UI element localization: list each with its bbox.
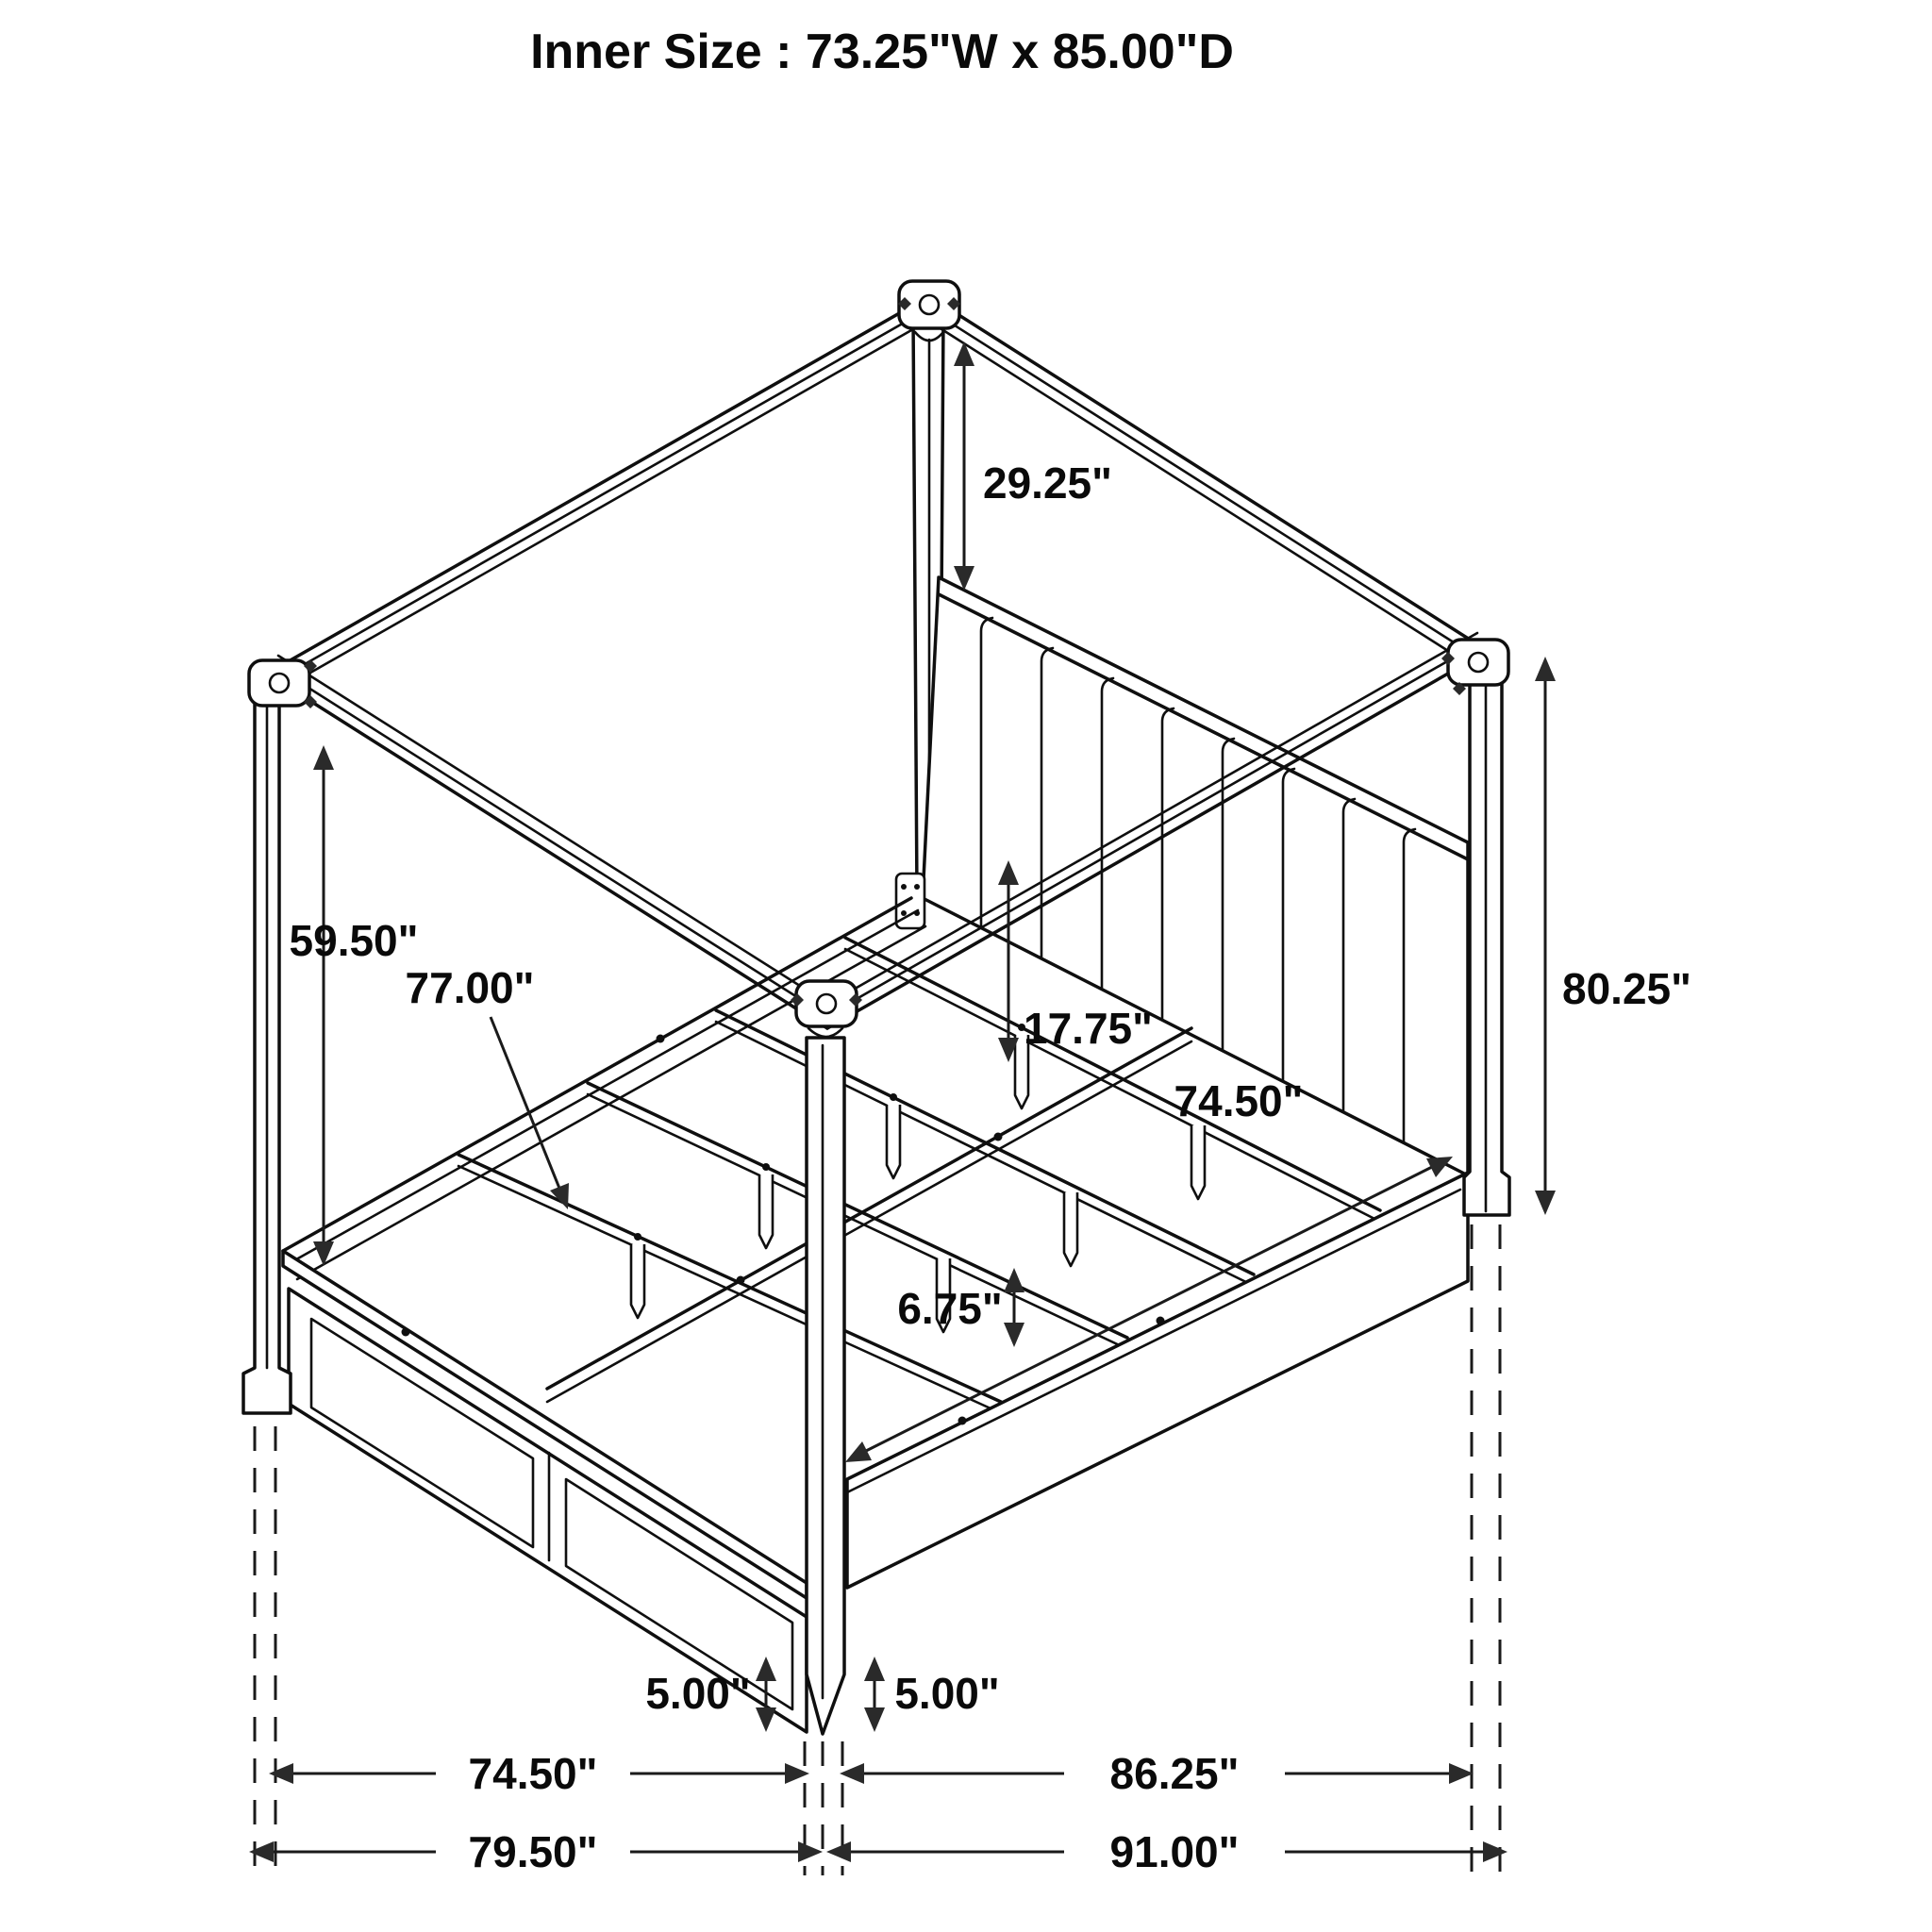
canopy-bed-dimension-drawing: Inner Size : 73.25"W x 85.00"D bbox=[0, 0, 1932, 1932]
dimension-label-86-25: 86.25" bbox=[1110, 1749, 1240, 1798]
dim-overall-width: 79.50" bbox=[249, 1827, 823, 1876]
dimension-label-5-00-right: 5.00" bbox=[894, 1669, 999, 1718]
page-title: Inner Size : 73.25"W x 85.00"D bbox=[530, 25, 1234, 79]
front-post bbox=[807, 1038, 844, 1734]
right-post bbox=[1464, 664, 1509, 1215]
dim-canopy-to-headboard: 29.25" bbox=[954, 341, 1112, 591]
dim-footboard-width: 74.50" bbox=[269, 1749, 809, 1798]
dimension-label-91-00: 91.00" bbox=[1110, 1827, 1240, 1876]
dimension-label-74-50-rail: 74.50" bbox=[1174, 1076, 1304, 1125]
dimension-label-6-75: 6.75" bbox=[897, 1284, 1002, 1333]
dimension-label-74-50-bottom: 74.50" bbox=[469, 1749, 598, 1798]
right-side-rail bbox=[847, 1173, 1468, 1588]
dimension-label-29-25: 29.25" bbox=[983, 458, 1112, 508]
dimension-label-79-50: 79.50" bbox=[469, 1827, 598, 1876]
dimension-label-77-00: 77.00" bbox=[406, 963, 535, 1012]
canopy-corner-left bbox=[249, 659, 317, 708]
dimension-label-80-25: 80.25" bbox=[1562, 964, 1691, 1013]
dim-overall-height: 80.25" bbox=[1535, 657, 1691, 1215]
canopy-corner-front bbox=[791, 981, 862, 1026]
dim-canopy-to-footboard: 59.50" bbox=[290, 745, 419, 1266]
dim-foot-right: 5.00" bbox=[864, 1657, 1000, 1732]
footboard bbox=[283, 1251, 807, 1732]
left-post bbox=[243, 687, 291, 1413]
dim-side-length: 86.25" bbox=[840, 1749, 1474, 1798]
diagram-page: Inner Size : 73.25"W x 85.00"D bbox=[0, 0, 1932, 1932]
canopy-corner-top bbox=[898, 281, 960, 328]
dim-overall-depth: 91.00" bbox=[826, 1827, 1507, 1876]
dimension-label-17-75: 17.75" bbox=[1024, 1004, 1153, 1053]
dimension-label-59-50: 59.50" bbox=[290, 916, 419, 965]
dimension-label-5-00-left: 5.00" bbox=[645, 1669, 750, 1718]
